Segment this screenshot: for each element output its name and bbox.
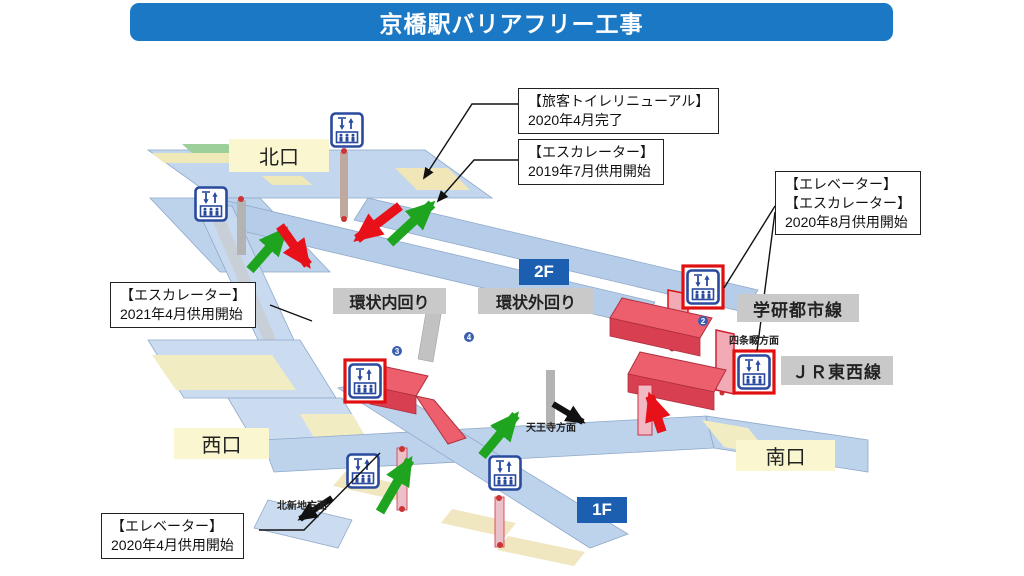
- label-to-kitashinchi: 北新地方面: [277, 497, 327, 512]
- svg-text:3: 3: [395, 347, 400, 356]
- label-jr-tozai-line: ＪＲ東西線: [781, 356, 893, 385]
- page-title: 京橋駅バリアフリー工事: [380, 5, 644, 39]
- elevator-icon-highlighted: [345, 360, 385, 402]
- title-banner: 京橋駅バリアフリー工事: [130, 3, 893, 41]
- callout-escalator-2019: 【エスカレーター】 2019年7月供用開始: [518, 139, 664, 185]
- label-to-shijonawate: 四条畷方面: [729, 332, 779, 347]
- callout-elevator-2020: 【エレベーター】 2020年4月供用開始: [101, 513, 244, 559]
- label-south-exit: 南口: [736, 440, 835, 471]
- elevator-icon: [332, 114, 363, 147]
- elevator-icon-highlighted: [683, 266, 723, 308]
- floor-badge-2f: 2F: [519, 259, 569, 285]
- svg-text:4: 4: [467, 333, 472, 342]
- label-west-exit: 西口: [174, 428, 269, 459]
- label-gakkentoshi-line: 学研都市線: [737, 294, 859, 322]
- svg-text:2: 2: [701, 317, 706, 326]
- callout-elevator-escalator-2020: 【エレベーター】 【エスカレーター】 2020年8月供用開始: [775, 171, 921, 235]
- floor-badge-1f: 1F: [577, 497, 627, 523]
- elevator-icon: [196, 188, 227, 221]
- slide: 2 3 4 京橋駅バリアフリー工事 【旅客トイレリニューアル】 2020年4月完…: [0, 0, 1024, 576]
- elevator-icon-highlighted: [734, 351, 774, 393]
- label-north-exit: 北口: [229, 139, 329, 172]
- structure-pillars: [237, 148, 725, 548]
- callout-escalator-2021: 【エスカレーター】 2021年4月供用開始: [110, 282, 256, 328]
- label-to-tennoji: 天王寺方面: [526, 419, 576, 434]
- callout-toilet-renewal: 【旅客トイレリニューアル】 2020年4月完了: [518, 88, 719, 134]
- label-loop-inner-track: 環状内回り: [333, 288, 446, 314]
- label-loop-outer-track: 環状外回り: [478, 288, 594, 314]
- elevator-icon: [490, 457, 521, 490]
